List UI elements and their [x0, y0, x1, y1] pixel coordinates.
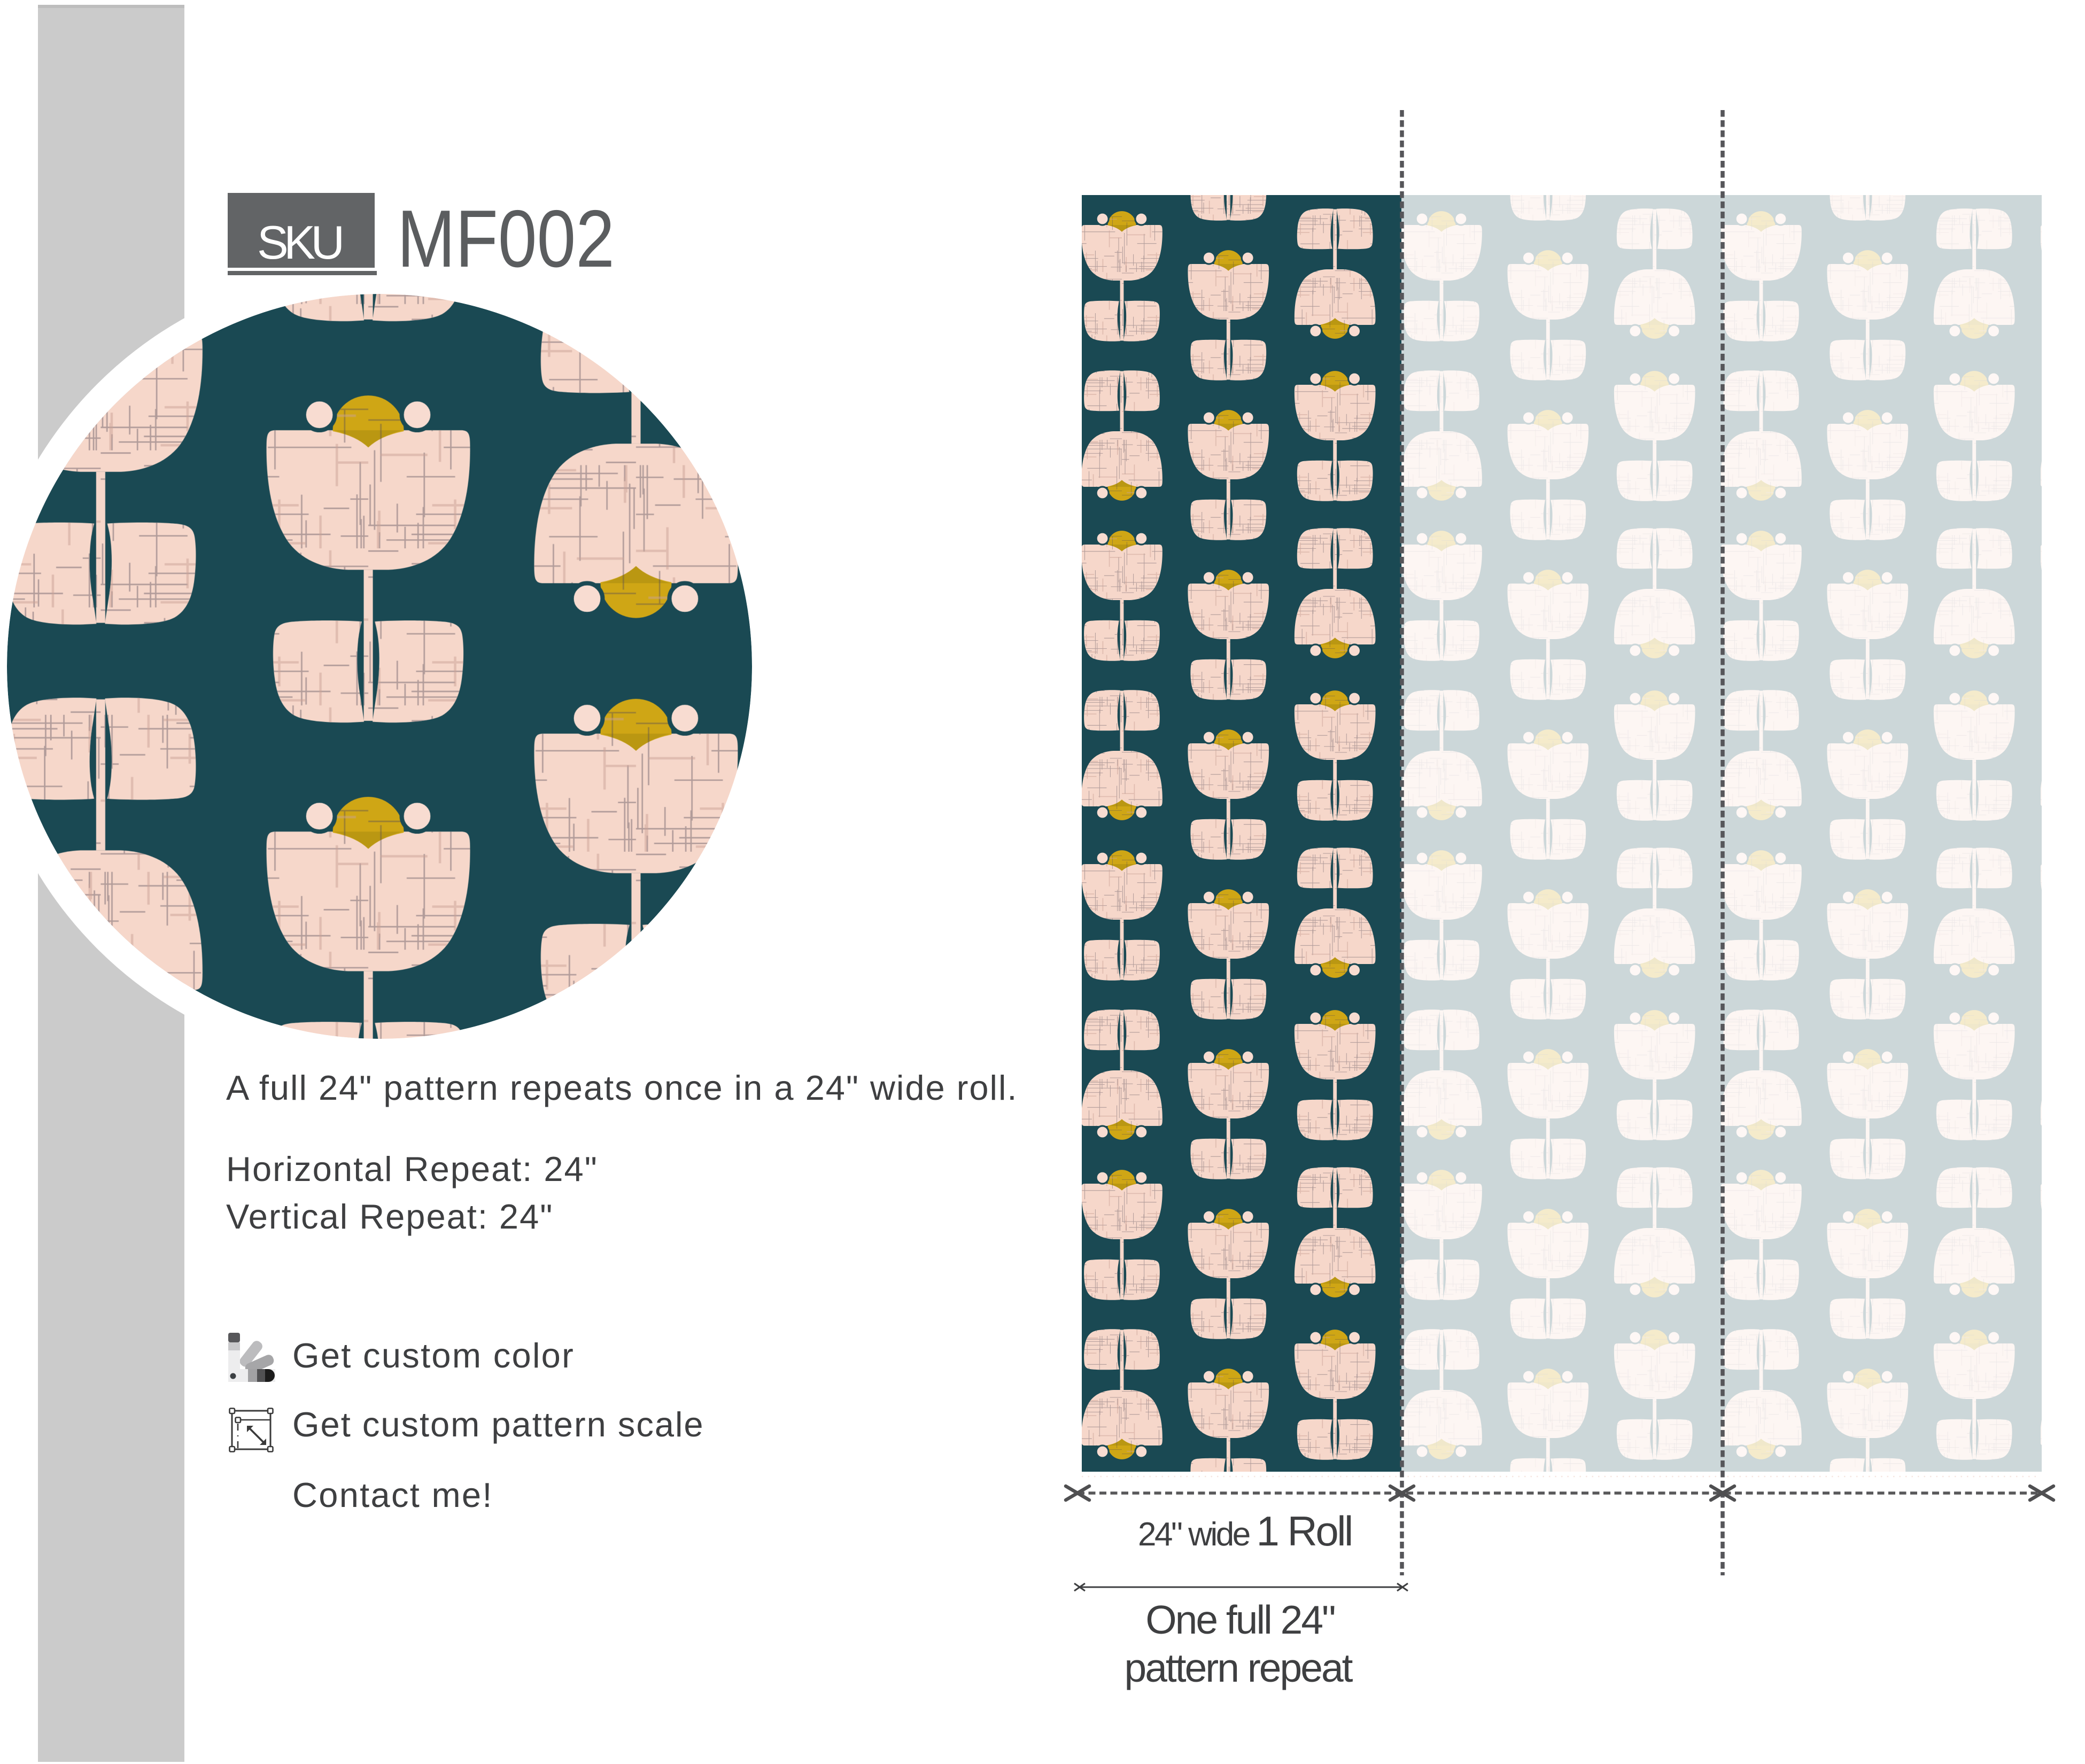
svg-text:Horizontal Repeat: 24": Horizontal Repeat: 24" — [226, 1149, 598, 1188]
svg-text:Contact me!: Contact me! — [292, 1475, 493, 1514]
svg-text:MF002: MF002 — [397, 193, 615, 284]
svg-text:pattern repeat: pattern repeat — [1125, 1645, 1353, 1690]
svg-text:Get custom pattern scale: Get custom pattern scale — [292, 1405, 704, 1444]
svg-text:Vertical Repeat: 24": Vertical Repeat: 24" — [226, 1197, 553, 1236]
svg-text:A full 24" pattern repeats onc: A full 24" pattern repeats once in a 24"… — [226, 1068, 1018, 1107]
svg-text:SKU: SKU — [257, 216, 345, 269]
svg-text:One full 24": One full 24" — [1145, 1597, 1335, 1642]
svg-text:24" wide 1 Roll: 24" wide 1 Roll — [1138, 1507, 1352, 1555]
svg-text:Get custom color: Get custom color — [292, 1336, 575, 1375]
